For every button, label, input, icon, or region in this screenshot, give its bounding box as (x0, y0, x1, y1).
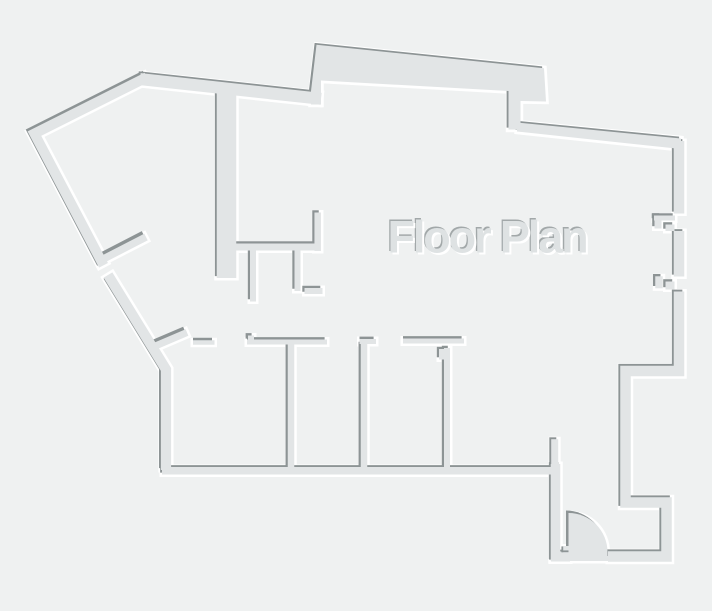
svg-text:Floor Plan: Floor Plan (388, 212, 587, 263)
